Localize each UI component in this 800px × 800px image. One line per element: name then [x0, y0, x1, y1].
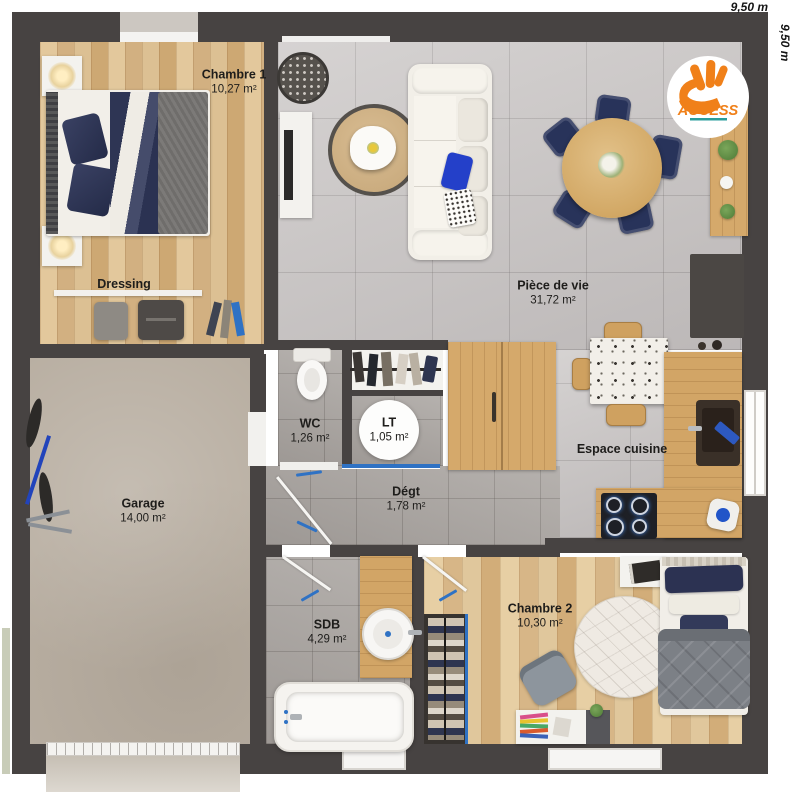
room-name: WC — [291, 415, 330, 431]
tub-faucet — [290, 714, 302, 720]
sofa — [408, 64, 492, 260]
pillow — [669, 595, 739, 614]
dimension-top: 9,50 m — [690, 0, 768, 14]
spice-jar — [712, 340, 722, 350]
bathtub — [274, 682, 414, 752]
room-name: Garage — [120, 495, 165, 511]
flower-decor — [367, 142, 379, 154]
flower-centerpiece — [598, 152, 626, 178]
wall-garage-bottom-left — [12, 744, 46, 774]
access-logo-text: ACCESS — [677, 103, 739, 119]
window-chambre2 — [548, 748, 662, 770]
room-name: Dégt — [387, 483, 426, 499]
room-area: 14,00 m² — [120, 512, 165, 527]
kitchen-sink — [696, 400, 740, 466]
duvet — [658, 629, 750, 709]
label-chambre1: Chambre 1 10,27 m² — [202, 66, 267, 97]
label-espace-cuisine: Espace cuisine — [577, 441, 667, 457]
kitchen-island — [590, 338, 668, 404]
hanging-rail — [206, 298, 248, 342]
front-door-sill — [282, 36, 390, 42]
kitchen-stool — [572, 358, 592, 390]
entry-rack — [348, 348, 443, 392]
label-lt: LT 1,05 m² — [370, 414, 409, 445]
room-area: 1,78 m² — [387, 500, 426, 515]
wall-left-upper — [12, 42, 40, 354]
pillow — [66, 163, 116, 218]
lamp-glow — [48, 62, 76, 90]
garage-door — [46, 742, 240, 756]
desk — [516, 710, 586, 744]
floor-plan: Chambre 1 10,27 m² Dressing Pièce de vie… — [0, 0, 800, 800]
chambre2-wardrobe — [424, 614, 468, 744]
pillow — [665, 565, 744, 594]
sofa-back-cushion — [458, 98, 488, 142]
label-chambre2: Chambre 2 10,30 m² — [508, 600, 573, 631]
room-name: Chambre 1 — [202, 66, 267, 82]
bike-wheel — [23, 397, 45, 448]
headboard — [46, 92, 58, 234]
grass-strip — [2, 628, 10, 774]
dish — [720, 176, 733, 189]
notepad — [553, 717, 572, 738]
wall-dressing-garage — [12, 344, 264, 358]
access-logo: ACCESS — [666, 55, 750, 139]
label-sdb: SDB 4,29 m² — [308, 616, 347, 647]
desk-plant — [590, 704, 603, 717]
hall-wardrobe — [448, 342, 556, 470]
faucet — [688, 426, 702, 431]
room-area: 31,72 m² — [517, 294, 589, 309]
label-garage: Garage 14,00 m² — [120, 495, 165, 526]
chambre2-wardrobe-rail — [465, 614, 468, 744]
door-wc-sill — [280, 462, 338, 470]
dimension-right: 9,50 m — [778, 24, 792, 61]
tv-screen — [284, 130, 293, 200]
label-dressing: Dressing — [97, 276, 151, 292]
label-piece-de-vie: Pièce de vie 31,72 m² — [517, 277, 589, 308]
toilet — [293, 348, 331, 404]
plant-pot — [720, 204, 735, 219]
suitcase-handle — [146, 318, 176, 321]
room-area: 10,27 m² — [202, 83, 267, 98]
wardrobe-handle — [492, 392, 496, 422]
window-chambre1 — [120, 12, 198, 32]
kitchen-stool — [606, 404, 646, 426]
throw-blanket — [158, 92, 208, 234]
logo-underline — [690, 118, 727, 121]
pillow — [61, 112, 109, 166]
room-name: LT — [370, 414, 409, 430]
bed-chambre1 — [46, 90, 210, 236]
bicycle — [20, 394, 76, 544]
room-name: SDB — [308, 616, 347, 632]
wall-degt-a — [264, 545, 282, 557]
tall-cabinet — [690, 254, 744, 338]
sofa-armrest — [412, 68, 488, 94]
cooktop — [601, 493, 657, 539]
room-area: 10,30 m² — [508, 617, 573, 632]
door-lt-sliding — [342, 464, 440, 468]
window-chambre1-sill — [120, 32, 198, 42]
room-name: Dressing — [97, 276, 151, 292]
bed-chambre2 — [660, 557, 748, 715]
storage-bag — [94, 302, 128, 340]
bike-stand — [28, 522, 72, 534]
door-garage-degt — [248, 412, 266, 466]
label-wc: WC 1,26 m² — [291, 415, 330, 446]
book — [629, 560, 662, 584]
label-degt: Dégt 1,78 m² — [387, 483, 426, 514]
duvet — [110, 92, 164, 234]
spice-jar — [698, 342, 706, 350]
suitcase — [138, 300, 184, 340]
doormat — [277, 52, 329, 104]
room-name: Espace cuisine — [577, 441, 667, 457]
room-area: 1,05 m² — [370, 431, 409, 446]
dining-table — [562, 118, 662, 218]
window-cuisine-frame — [754, 392, 756, 494]
driveway — [46, 756, 240, 792]
drain — [385, 631, 391, 637]
room-area: 4,29 m² — [308, 633, 347, 648]
room-area: 1,26 m² — [291, 432, 330, 447]
dotted-cushion — [443, 188, 477, 228]
washbasin — [362, 608, 414, 660]
faucet — [408, 630, 422, 635]
wall-cuisine-chambre2 — [545, 538, 742, 553]
lamp-glow — [48, 232, 76, 260]
room-name: Pièce de vie — [517, 277, 589, 293]
room-name: Chambre 2 — [508, 600, 573, 616]
plant-pot — [718, 140, 738, 160]
